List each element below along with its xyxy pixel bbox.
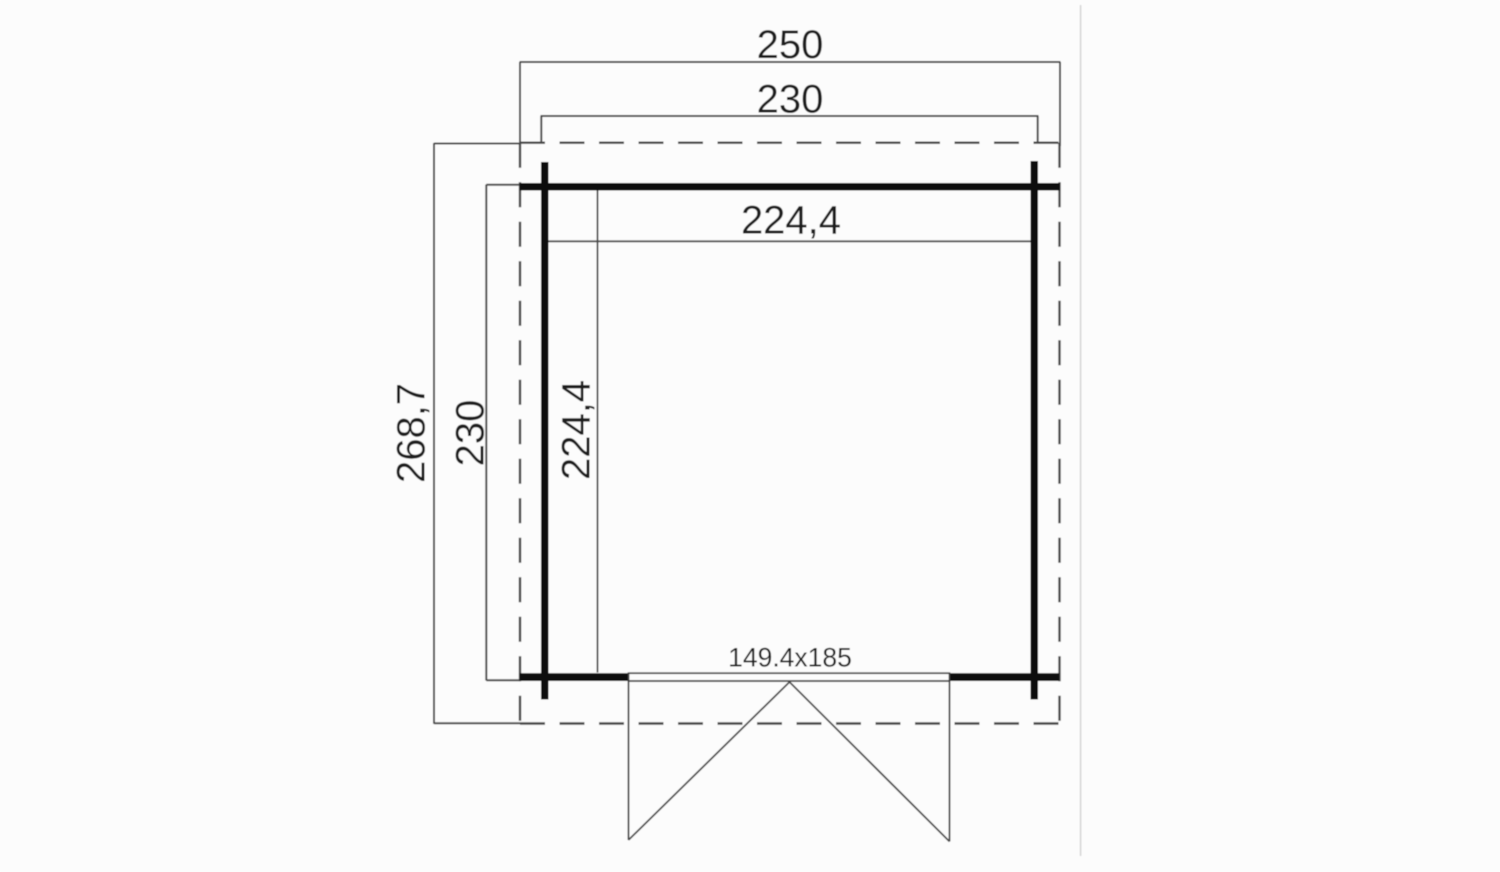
svg-text:224,4: 224,4 (555, 380, 599, 480)
svg-text:149.4x185: 149.4x185 (728, 643, 852, 673)
svg-text:224,4: 224,4 (741, 199, 841, 243)
svg-text:230: 230 (757, 78, 824, 122)
svg-text:268,7: 268,7 (390, 383, 434, 483)
svg-text:250: 250 (757, 23, 824, 67)
svg-text:230: 230 (449, 400, 493, 467)
